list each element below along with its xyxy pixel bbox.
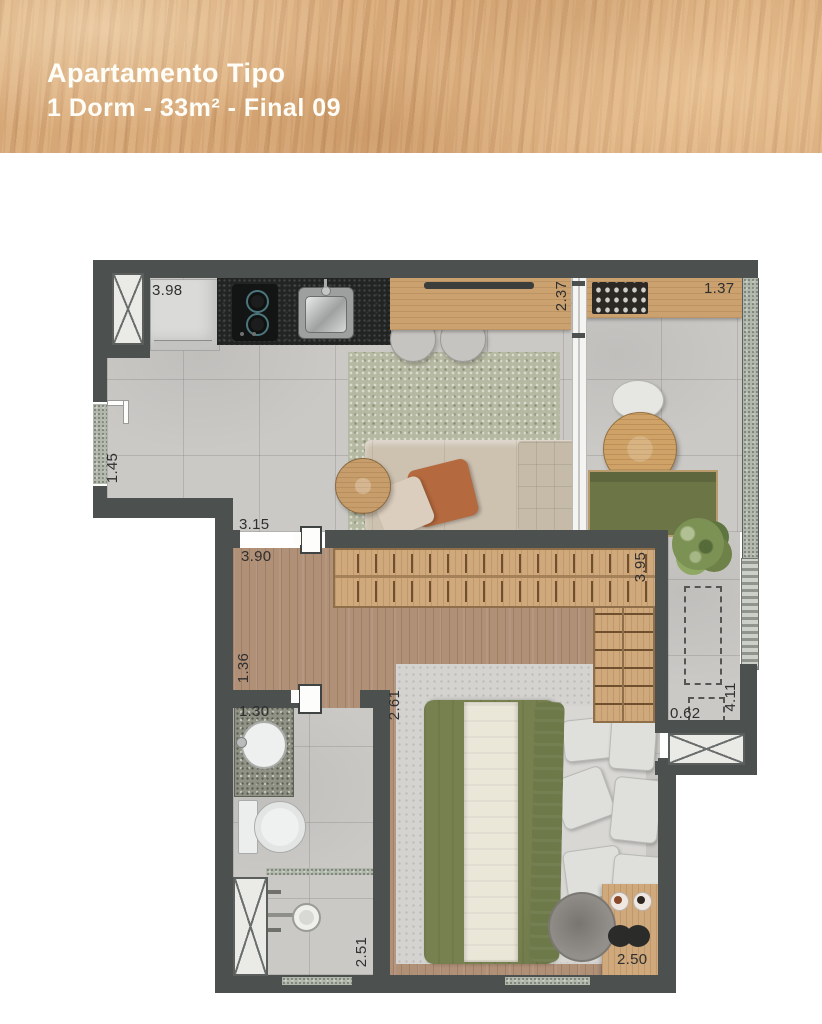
bedroom-sliding-door [300, 526, 322, 554]
shower-head-icon [292, 903, 321, 932]
shaft [112, 273, 144, 345]
bed-runner [464, 702, 518, 962]
wall [565, 530, 668, 548]
dim-hall-depth: 1.36 [235, 646, 251, 690]
exterior-area [93, 518, 233, 534]
balcony-railing [742, 278, 759, 566]
burner-icon [246, 290, 269, 313]
door-track [291, 690, 299, 703]
floor-plan-page: Apartamento Tipo 1 Dorm - 33m² - Final 0… [0, 0, 822, 1024]
cup-contents [614, 896, 622, 904]
balcony-glass-door [572, 278, 587, 532]
page-title: Apartamento Tipo [47, 58, 286, 89]
burner-icon [246, 313, 269, 336]
dim-bedroom-width: 3.90 [241, 548, 271, 565]
pouf [548, 892, 616, 962]
dim-balcony-depth: 4.11 [722, 675, 738, 719]
wine-rack [592, 282, 648, 314]
bathroom-faucet-icon [236, 737, 247, 748]
desk-accessory [626, 925, 650, 947]
cooktop-knob [240, 332, 244, 336]
shower-window [282, 977, 352, 985]
toilet [254, 801, 306, 853]
wall [325, 530, 575, 548]
bathroom-sliding-door [298, 684, 322, 714]
wall [373, 690, 390, 975]
door-frame-cap [572, 333, 585, 338]
wall [93, 260, 758, 278]
cup-contents [637, 896, 645, 904]
pillow [609, 776, 663, 845]
dim-bedroom-depth: 2.61 [386, 683, 402, 727]
closet-shelves [593, 606, 655, 723]
sink-basin [305, 296, 347, 333]
dim-ac-ledge-width: 0.62 [670, 705, 700, 722]
bedroom-window [505, 977, 590, 985]
shower-handle [268, 928, 281, 932]
wall [215, 518, 233, 993]
dim-entry-wall: 1.45 [104, 446, 120, 490]
header-banner: Apartamento Tipo 1 Dorm - 33m² - Final 0… [0, 0, 822, 153]
dim-living-width: 3.15 [239, 516, 269, 533]
door-track [293, 532, 301, 545]
sofa-chaise [518, 441, 574, 531]
wall [93, 498, 233, 518]
shaft [668, 733, 745, 765]
dim-bath-depth: 2.51 [353, 930, 369, 974]
closet-hangers [341, 554, 651, 573]
shaft [233, 877, 268, 976]
shower-arm [267, 913, 295, 917]
dim-bed-wall: 2.50 [617, 951, 647, 968]
bar-groove [424, 282, 534, 289]
wall [658, 758, 676, 993]
vent-grille [741, 558, 759, 670]
cooktop-knob [252, 332, 256, 336]
ac-unit-outline [684, 586, 722, 685]
shower-handle [268, 890, 281, 894]
plant [672, 518, 724, 570]
dim-living-glass: 2.37 [553, 274, 569, 318]
faucet-spout [324, 279, 327, 288]
dim-kitchen-wall: 3.98 [152, 282, 182, 299]
bathroom-sink [241, 721, 287, 769]
dim-balcony-width: 1.37 [704, 280, 734, 297]
fridge-handle [154, 340, 212, 347]
page-subtitle: 1 Dorm - 33m² - Final 09 [47, 94, 341, 123]
door-frame-cap [572, 281, 585, 286]
closet-rail [335, 575, 656, 578]
wall [655, 532, 668, 732]
dim-bath-width: 1.30 [239, 703, 269, 720]
dim-closet-wall: 3.95 [632, 545, 648, 589]
closet-hangers [341, 581, 651, 602]
side-table [335, 458, 391, 514]
shower-threshold [266, 868, 373, 875]
entry-door-swing [123, 400, 129, 424]
closet-divider [622, 606, 624, 723]
